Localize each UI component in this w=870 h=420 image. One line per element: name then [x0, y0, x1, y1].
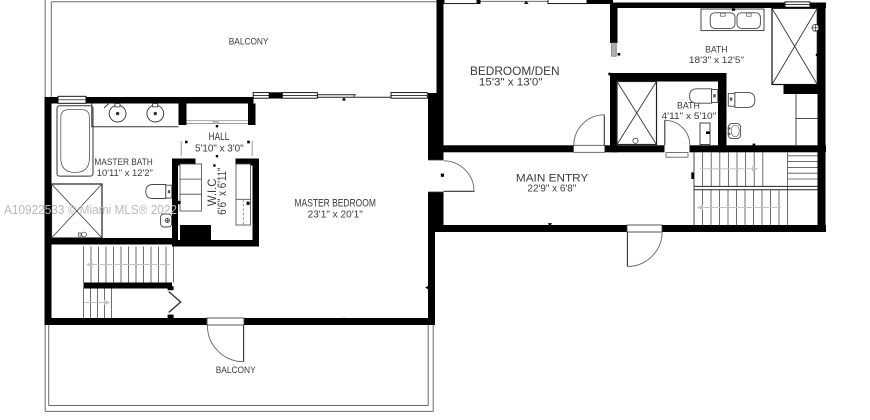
svg-text:6'6" x 6'11": 6'6" x 6'11" — [217, 168, 229, 215]
svg-text:BALCONY: BALCONY — [229, 37, 269, 47]
svg-text:HALL: HALL — [209, 131, 230, 143]
svg-text:MASTER BATH: MASTER BATH — [94, 157, 152, 167]
svg-text:22'9" x 6'8": 22'9" x 6'8" — [527, 183, 576, 194]
svg-text:18'3" x 12'5": 18'3" x 12'5" — [689, 55, 744, 66]
svg-text:15'3" x 13'0": 15'3" x 13'0" — [479, 76, 543, 88]
svg-text:A10922533 © Miami MLS® 2022: A10922533 © Miami MLS® 2022 — [4, 202, 177, 217]
svg-text:23'1" x 20'1": 23'1" x 20'1" — [308, 208, 363, 220]
svg-text:4'11" x 5'10": 4'11" x 5'10" — [662, 111, 717, 121]
svg-text:5'10" x 3'0": 5'10" x 3'0" — [195, 143, 244, 154]
svg-text:BALCONY: BALCONY — [216, 365, 256, 375]
svg-text:10'11" x 12'2": 10'11" x 12'2" — [97, 168, 153, 178]
